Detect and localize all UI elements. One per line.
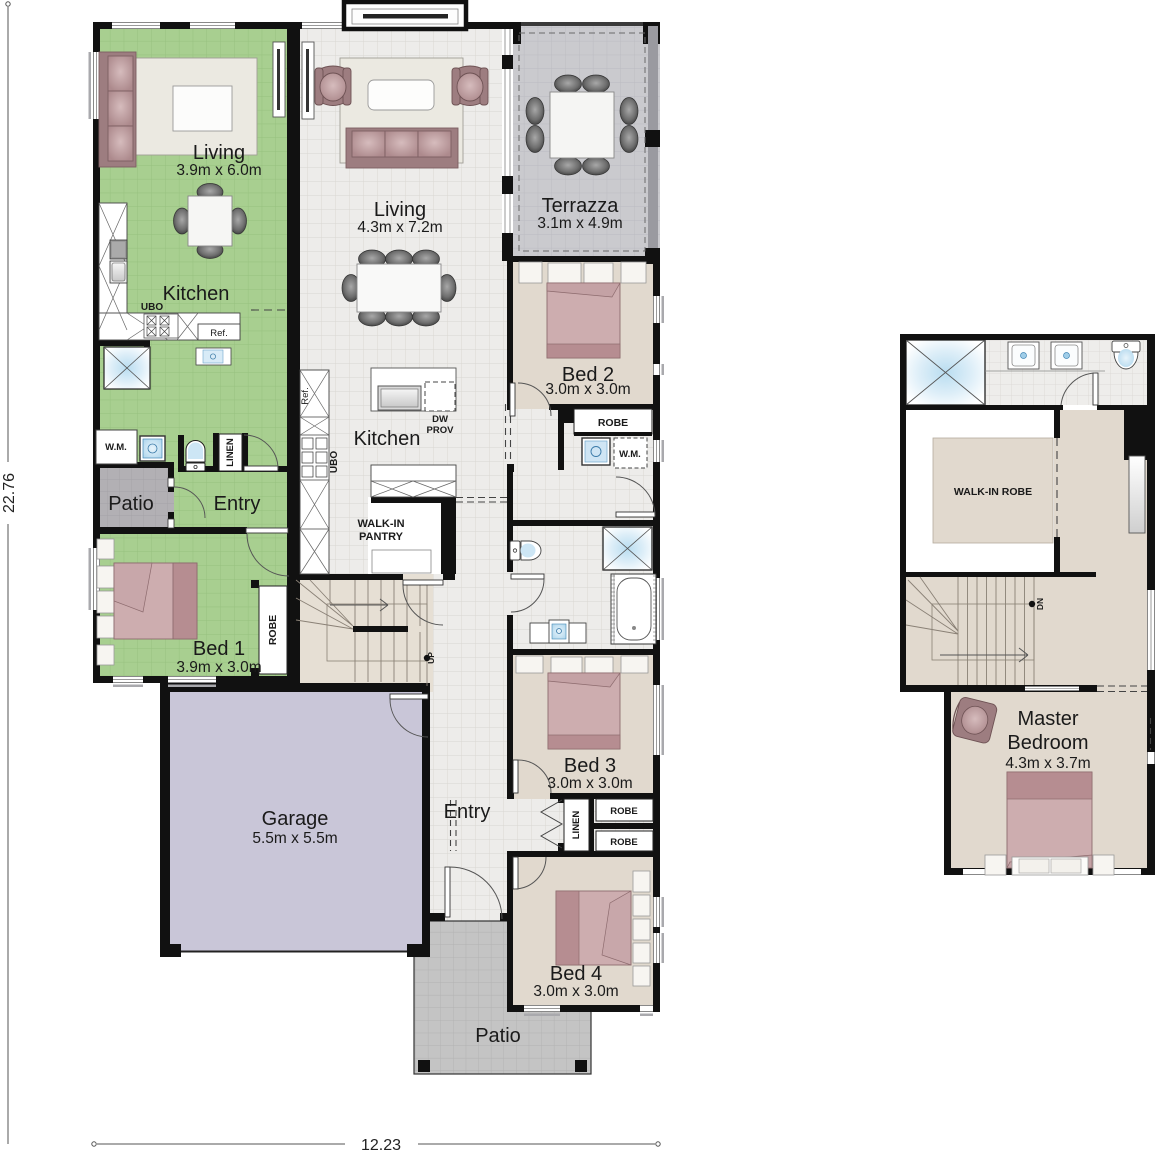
svg-text:Ref.: Ref. <box>210 328 227 339</box>
svg-text:3.0m x 3.0m: 3.0m x 3.0m <box>545 381 630 398</box>
svg-text:Terrazza: Terrazza <box>542 195 620 217</box>
svg-text:LINEN: LINEN <box>571 811 582 840</box>
svg-text:W.M.: W.M. <box>105 442 127 453</box>
svg-text:WALK-IN: WALK-IN <box>357 518 404 530</box>
svg-text:5.5m x 5.5m: 5.5m x 5.5m <box>252 830 337 847</box>
svg-text:WALK-IN ROBE: WALK-IN ROBE <box>954 486 1032 498</box>
svg-text:Bed 1: Bed 1 <box>193 638 245 660</box>
svg-text:LINEN: LINEN <box>225 438 236 467</box>
svg-text:Patio: Patio <box>475 1025 521 1047</box>
svg-text:UP: UP <box>426 652 436 664</box>
svg-text:3.9m x 6.0m: 3.9m x 6.0m <box>176 162 261 179</box>
svg-text:Patio: Patio <box>108 493 154 515</box>
svg-text:ROBE: ROBE <box>610 837 637 848</box>
svg-text:12.23: 12.23 <box>361 1137 401 1154</box>
svg-text:4.3m x 7.2m: 4.3m x 7.2m <box>357 219 442 236</box>
svg-text:3.9m x 3.0m: 3.9m x 3.0m <box>176 659 261 676</box>
svg-text:ROBE: ROBE <box>267 615 279 645</box>
svg-text:3.0m x 3.0m: 3.0m x 3.0m <box>547 775 632 792</box>
svg-text:DW: DW <box>432 414 448 425</box>
svg-text:UBO: UBO <box>141 302 163 313</box>
svg-text:W.M.: W.M. <box>619 449 641 460</box>
svg-text:ROBE: ROBE <box>598 417 628 429</box>
svg-text:22.76: 22.76 <box>1 473 18 513</box>
svg-text:Living: Living <box>374 199 426 221</box>
svg-text:Entry: Entry <box>214 493 261 515</box>
svg-text:Master: Master <box>1017 708 1078 730</box>
svg-text:Living: Living <box>193 142 245 164</box>
svg-text:3.1m x 4.9m: 3.1m x 4.9m <box>537 215 622 232</box>
svg-text:Garage: Garage <box>262 808 329 830</box>
svg-text:DN: DN <box>1035 598 1045 610</box>
svg-text:4.3m x 3.7m: 4.3m x 3.7m <box>1005 755 1090 772</box>
svg-text:ROBE: ROBE <box>610 806 637 817</box>
svg-text:PROV: PROV <box>427 425 455 436</box>
svg-text:Bedroom: Bedroom <box>1007 732 1088 754</box>
svg-text:Entry: Entry <box>444 801 491 823</box>
svg-text:Ref.: Ref. <box>300 387 311 404</box>
svg-text:Bed 4: Bed 4 <box>550 963 602 985</box>
svg-text:Kitchen: Kitchen <box>163 283 230 305</box>
svg-text:3.0m x 3.0m: 3.0m x 3.0m <box>533 983 618 1000</box>
svg-text:Bed 3: Bed 3 <box>564 755 616 777</box>
svg-text:PANTRY: PANTRY <box>359 531 404 543</box>
svg-text:Kitchen: Kitchen <box>354 428 421 450</box>
svg-text:UBO: UBO <box>329 451 340 473</box>
